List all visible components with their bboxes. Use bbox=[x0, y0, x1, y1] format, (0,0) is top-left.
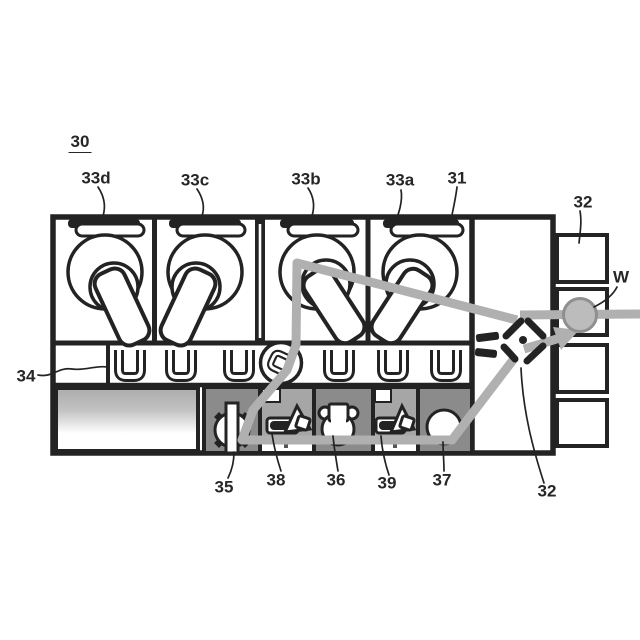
leader-33d bbox=[98, 187, 104, 216]
ref-label-unit-37: 37 bbox=[433, 472, 452, 489]
process-chamber-33d bbox=[68, 219, 153, 349]
robot-center bbox=[519, 336, 527, 344]
robot-arm-bar bbox=[476, 332, 500, 343]
wafer-holder bbox=[170, 350, 192, 377]
tank-compartment bbox=[56, 388, 198, 451]
transfer-robot bbox=[475, 321, 543, 361]
ref-label-shuttle-34: 34 bbox=[17, 368, 36, 385]
ref-label-unit-35: 35 bbox=[215, 479, 234, 496]
leader-37 bbox=[443, 442, 444, 471]
leader-35 bbox=[228, 452, 234, 478]
ref-label-chamber-33b: 33b bbox=[291, 171, 320, 188]
leader-34 bbox=[38, 367, 107, 376]
wafer-holder bbox=[435, 350, 457, 377]
leader-33b bbox=[308, 188, 314, 216]
load-port-1 bbox=[557, 235, 607, 282]
ref-label-chamber-33a: 33a bbox=[386, 172, 414, 189]
ref-label-loadport-32: 32 bbox=[574, 194, 593, 211]
ref-label-unit-38: 38 bbox=[267, 472, 286, 489]
ref-label-robot-32: 32 bbox=[538, 483, 557, 500]
apparatus-drawing bbox=[0, 0, 640, 640]
patent-figure: 30 33d 33c 33b 33a 31 32 W 34 35 38 36 3… bbox=[0, 0, 640, 640]
wafer-holder bbox=[228, 350, 250, 377]
leader-32-bottom bbox=[521, 368, 544, 483]
ref-label-unit-39: 39 bbox=[378, 475, 397, 492]
robot-arm-bar bbox=[475, 348, 498, 358]
ref-label-apparatus-30: 30 bbox=[69, 133, 92, 153]
ref-label-unit-36: 36 bbox=[327, 472, 346, 489]
ref-label-housing-31: 31 bbox=[448, 170, 467, 187]
wafer-holder bbox=[382, 350, 404, 377]
leader-33c bbox=[197, 189, 203, 216]
ref-label-chamber-33d: 33d bbox=[81, 170, 110, 187]
ref-label-chamber-33c: 33c bbox=[181, 172, 209, 189]
wafer-holder bbox=[119, 350, 141, 377]
wafer-holder bbox=[328, 350, 350, 377]
leader-31 bbox=[452, 187, 457, 215]
ref-label-wafer-w: W bbox=[613, 269, 629, 286]
wafer-w bbox=[564, 299, 597, 332]
load-port-3 bbox=[557, 345, 607, 392]
load-port-4 bbox=[557, 400, 607, 446]
process-chamber-33c bbox=[157, 219, 245, 349]
